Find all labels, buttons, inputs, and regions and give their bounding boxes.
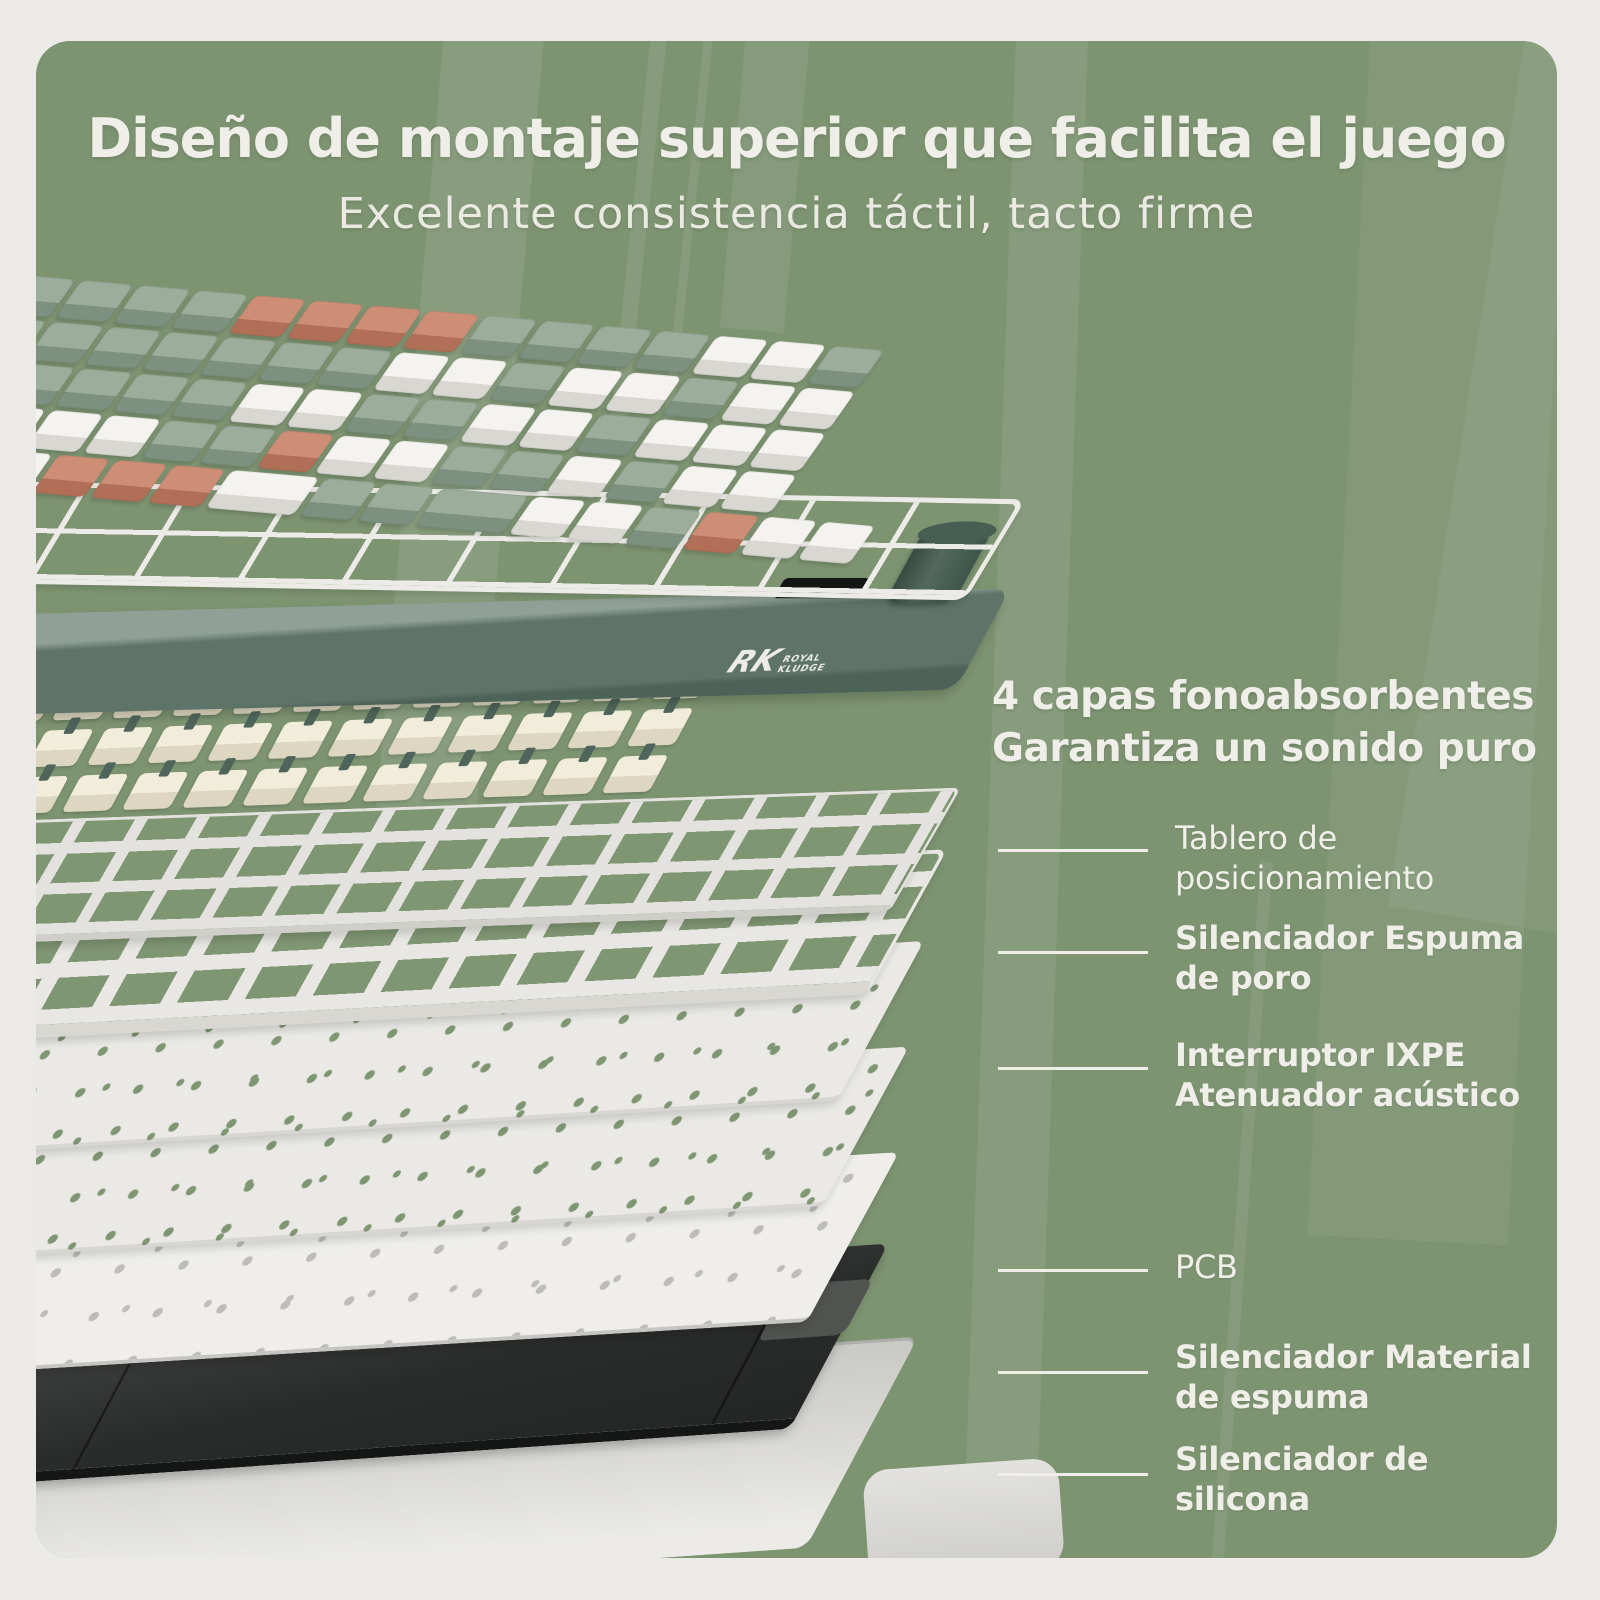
switch	[386, 716, 453, 754]
label-leader-line	[998, 1371, 1148, 1374]
switch	[481, 759, 548, 797]
brand-logo: RK ROYAL KLUDGE	[722, 644, 837, 679]
switch	[446, 714, 513, 752]
switch	[541, 757, 608, 795]
label-line-text: Tablero de	[1175, 818, 1434, 858]
marketing-card: Diseño de montaje superior que facilita …	[36, 41, 1557, 1558]
page-title: Diseño de montaje superior que facilita …	[36, 107, 1557, 170]
label-line-text: Interruptor IXPE	[1175, 1035, 1520, 1075]
feature-line-1: 4 capas fonoabsorbentes	[992, 671, 1537, 723]
label-line-text: Silenciador Material	[1175, 1337, 1532, 1377]
layer-top-case: RK ROYAL KLUDGE	[36, 588, 1011, 716]
layer-label-pcb: PCB	[1175, 1247, 1238, 1287]
background-streak	[957, 41, 1090, 1558]
label-leader-line	[998, 951, 1148, 954]
switch	[241, 767, 308, 805]
brand-name-bottom: KLUDGE	[775, 663, 827, 675]
label-line-text: Atenuador acústico	[1175, 1075, 1520, 1115]
label-line-text: silicona	[1175, 1479, 1428, 1519]
switch	[122, 772, 189, 810]
switch	[601, 755, 668, 793]
switch	[206, 723, 273, 761]
label-line-text: de espuma	[1175, 1377, 1532, 1417]
keycap	[205, 470, 319, 516]
layer-label-ixpe: Interruptor IXPE Atenuador acústico	[1175, 1035, 1520, 1115]
switch	[36, 729, 94, 767]
switch	[87, 727, 154, 765]
switch	[626, 708, 693, 746]
keycap	[415, 488, 529, 534]
label-line-text: PCB	[1175, 1247, 1238, 1287]
switch	[301, 765, 368, 803]
switch	[146, 725, 213, 763]
feature-line-2: Garantiza un sonido puro	[992, 723, 1537, 775]
label-leader-line	[998, 1269, 1148, 1272]
switch	[326, 718, 393, 756]
layer-label-poron-foam: Silenciador Espuma de poro	[1175, 918, 1524, 998]
switch	[181, 770, 248, 808]
layer-label-foam-dampener: Silenciador Material de espuma	[1175, 1337, 1532, 1417]
page-subtitle: Excelente consistencia táctil, tacto fir…	[36, 189, 1557, 239]
layer-label-silicone: Silenciador de silicona	[1175, 1439, 1428, 1519]
switch	[566, 710, 633, 748]
label-leader-line	[998, 1067, 1148, 1070]
switch	[361, 763, 428, 801]
label-line-text: Silenciador de	[1175, 1439, 1428, 1479]
label-line-text: Silenciador Espuma	[1175, 918, 1524, 958]
switch	[266, 721, 333, 759]
switch	[62, 774, 129, 812]
label-leader-line	[998, 849, 1148, 852]
feature-heading: 4 capas fonoabsorbentes Garantiza un son…	[992, 671, 1537, 775]
background-streak	[720, 41, 816, 333]
layer-label-positioning-plate: Tablero de posicionamiento	[1175, 818, 1434, 898]
switch	[506, 712, 573, 750]
label-line-text: posicionamiento	[1175, 858, 1434, 898]
label-line-text: de poro	[1175, 958, 1524, 998]
label-leader-line	[998, 1473, 1148, 1476]
switch	[421, 761, 488, 799]
